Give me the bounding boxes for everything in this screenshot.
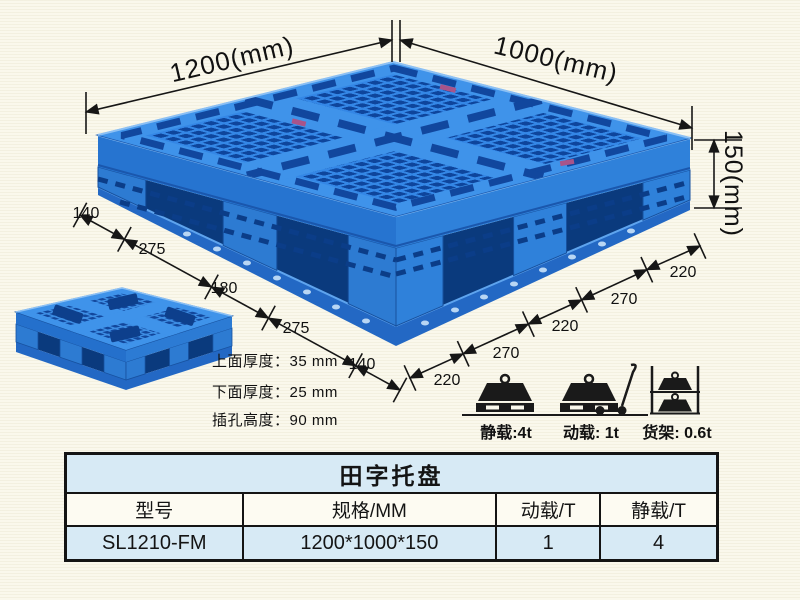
spec-header-static-load: 静载/T: [601, 494, 716, 525]
dim-chain-label: 140: [340, 356, 384, 374]
product-datasheet: 1200(mm) 1000(mm) 150(mm) 140 275 180 27…: [0, 0, 800, 600]
dim-chain-label: 220: [425, 372, 469, 390]
dim-chain-label: 270: [484, 345, 528, 363]
dim-label-height: 150(mm): [718, 130, 747, 260]
slot-height-note: 插孔高度：90 mm: [212, 409, 338, 430]
rack-load-caption: 货架: 0.6t: [634, 419, 720, 443]
dim-chain-label: 220: [543, 318, 587, 336]
spec-table-title: 田字托盘: [67, 455, 716, 494]
thickness-note-top: 上面厚度：35 mm: [212, 350, 338, 371]
load-rating-icons: [462, 365, 700, 415]
spec-table-data-row: SL1210-FM 1200*1000*150 1 4: [67, 527, 716, 559]
dynamic-load-icon: [560, 365, 636, 415]
spec-cell-dynamic-load: 1: [497, 527, 601, 559]
thickness-note-bottom: 下面厚度：25 mm: [212, 381, 338, 402]
static-load-caption: 静载:4t: [468, 419, 544, 443]
static-load-icon: [476, 375, 534, 412]
small-pallet-illustration: [16, 288, 232, 390]
dim-chain-label: 220: [661, 264, 705, 282]
spec-header-model: 型号: [67, 494, 244, 525]
spec-cell-model: SL1210-FM: [67, 527, 244, 559]
dim-chain-label: 140: [64, 205, 108, 223]
rack-load-icon: [650, 366, 700, 414]
dim-chain-label: 270: [602, 291, 646, 309]
spec-header-size: 规格/MM: [244, 494, 498, 525]
spec-cell-size: 1200*1000*150: [244, 527, 498, 559]
spec-table-header-row: 型号 规格/MM 动载/T 静载/T: [67, 494, 716, 527]
spec-header-dynamic-load: 动载/T: [497, 494, 601, 525]
spec-table: 田字托盘 型号 规格/MM 动载/T 静载/T SL1210-FM 1200*1…: [64, 452, 719, 562]
dim-chain-label: 275: [274, 320, 318, 338]
spec-cell-static-load: 4: [601, 527, 716, 559]
dim-chain-label: 275: [130, 241, 174, 259]
dynamic-load-caption: 动载: 1t: [548, 419, 634, 443]
dim-chain-label: 180: [202, 280, 246, 298]
